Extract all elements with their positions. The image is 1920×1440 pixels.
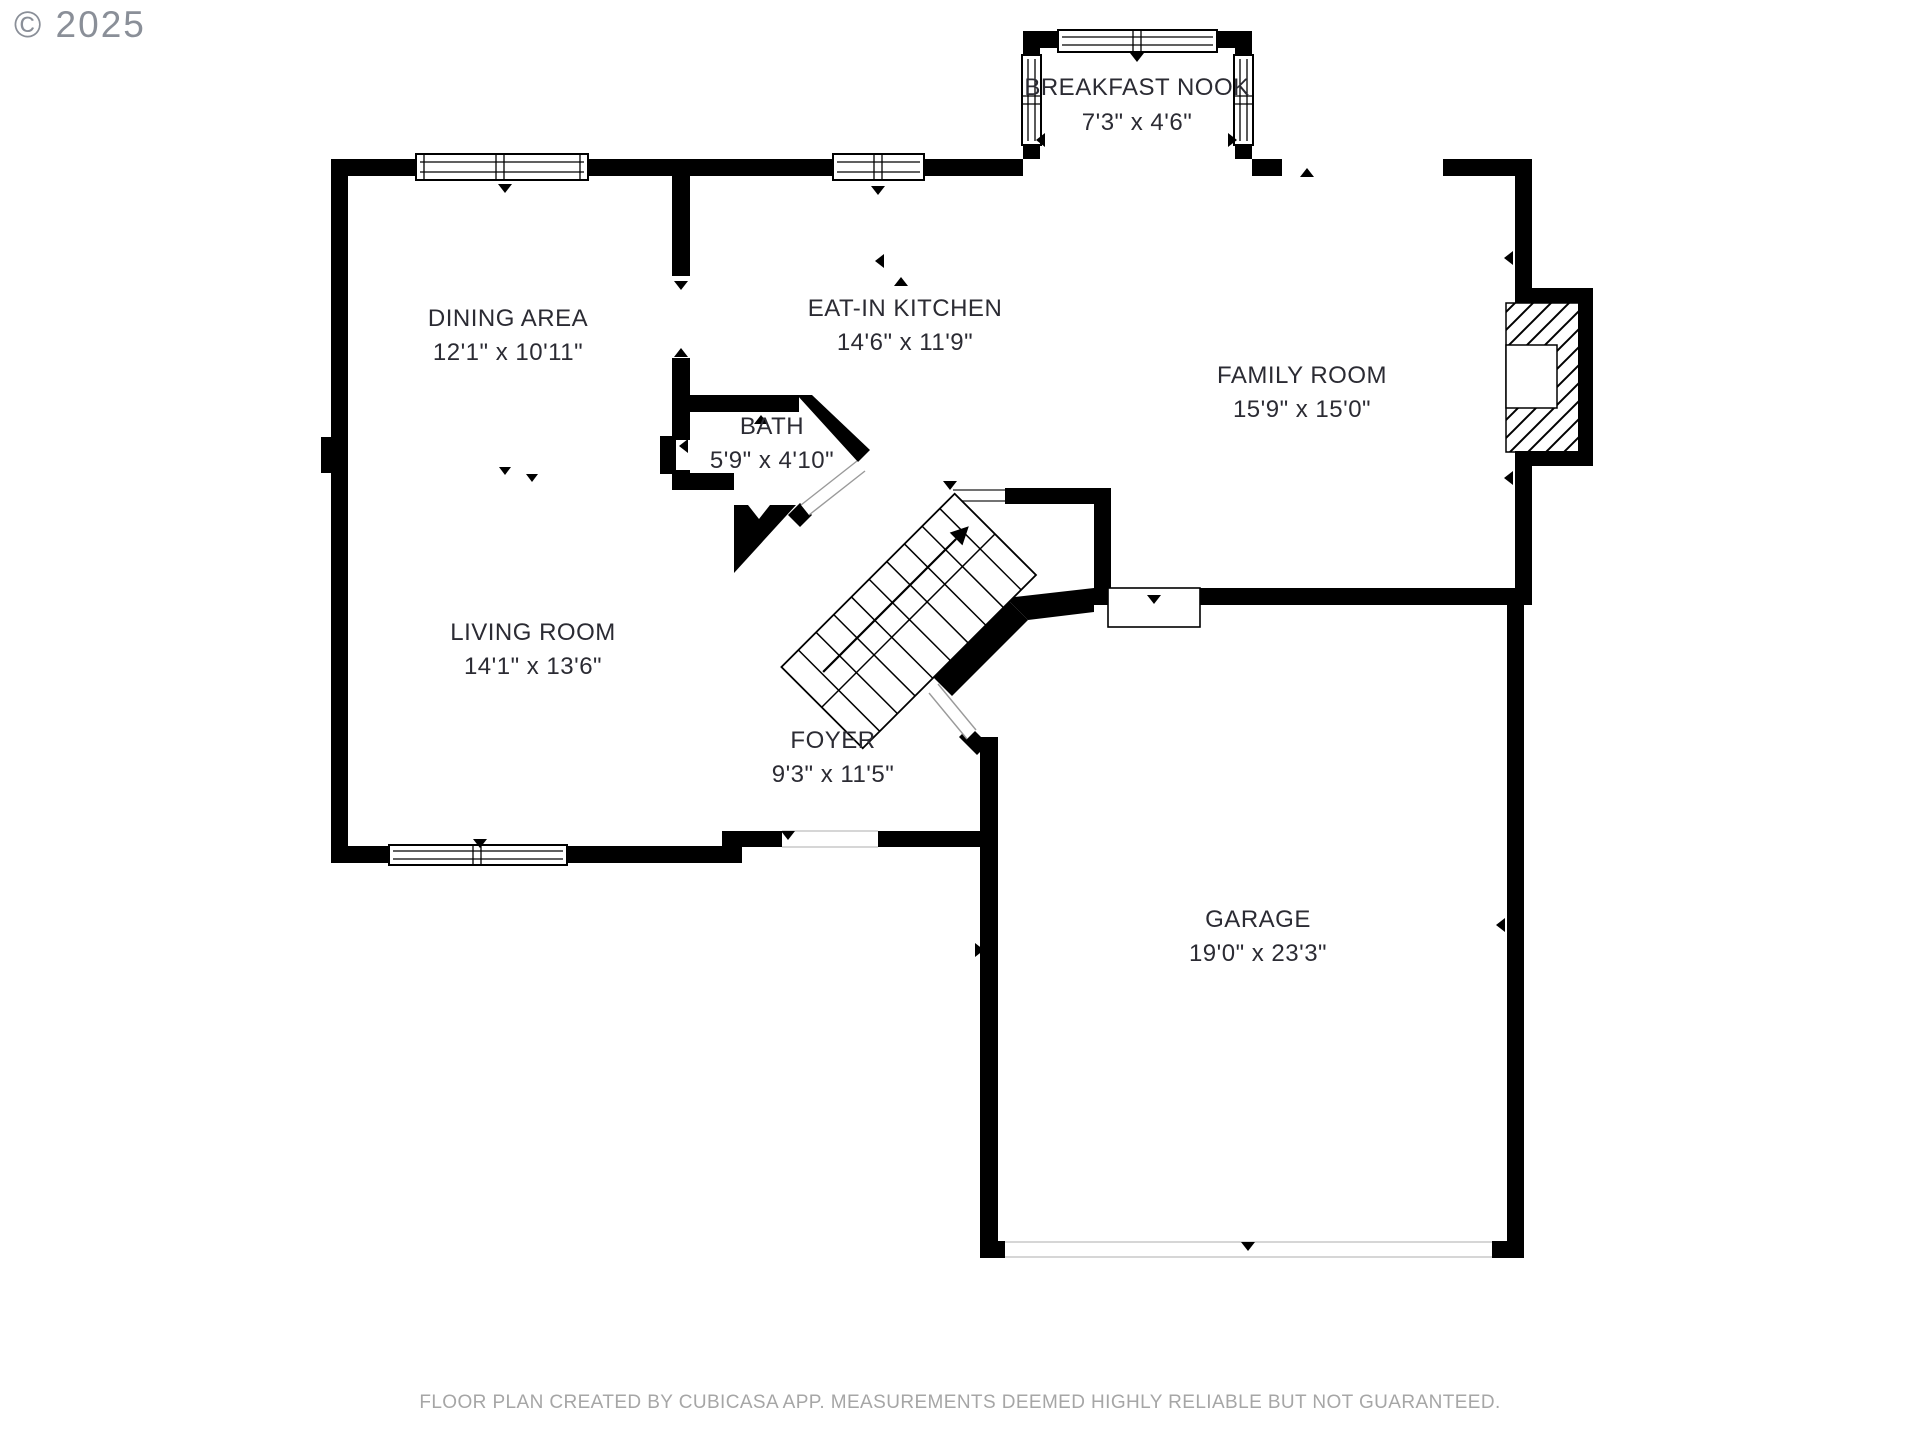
fireplace — [1506, 303, 1580, 452]
marker-down-icon — [498, 184, 512, 193]
living-room-window — [389, 845, 567, 865]
marker-down-icon — [526, 474, 538, 482]
wall-right-upper — [1515, 159, 1532, 288]
wall-stairtop — [1005, 488, 1094, 504]
marker-left-icon — [1496, 918, 1505, 932]
room-dims-breakfast-nook: 7'3" x 4'6" — [1082, 109, 1192, 136]
marker-down-icon — [1130, 53, 1144, 62]
wall-left — [331, 159, 348, 863]
room-label-garage: GARAGE — [1205, 906, 1311, 933]
disclaimer-text: FLOOR PLAN CREATED BY CUBICASA APP. MEAS… — [0, 1392, 1920, 1414]
marker-down-icon — [871, 186, 885, 195]
marker-left-icon — [1504, 251, 1513, 265]
marker-up-icon — [894, 277, 908, 286]
wall-foyer-bottom — [878, 831, 988, 847]
marker-up-icon — [1300, 168, 1314, 177]
wall-right-mid — [1515, 466, 1532, 605]
dining-window — [416, 154, 588, 180]
wall-bath-south — [672, 473, 734, 490]
room-dims-foyer: 9'3" x 11'5" — [772, 761, 895, 788]
wall-bath-pillar — [660, 436, 676, 474]
floor-plan-canvas: BREAKFAST NOOK 7'3" x 4'6" DINING AREA 1… — [0, 0, 1920, 1440]
garage-entry-door — [1108, 588, 1200, 627]
room-label-family-room: FAMILY ROOM — [1217, 362, 1387, 389]
marker-up-icon — [674, 348, 688, 357]
room-dims-living-room: 14'1" x 13'6" — [464, 653, 602, 680]
wall-bath-north — [672, 395, 799, 412]
marker-left-icon — [875, 254, 884, 268]
nook-top-window — [1058, 30, 1217, 52]
room-dims-eat-in-kitchen: 14'6" x 11'9" — [837, 329, 973, 356]
wall-garage-left — [980, 737, 998, 1258]
wall-foyer-step — [722, 831, 782, 847]
room-dims-dining-area: 12'1" x 10'11" — [433, 339, 583, 366]
wall-dining-divider — [672, 176, 690, 276]
marker-left-icon — [1504, 471, 1513, 485]
wall-garage-right — [1507, 605, 1524, 1258]
wall-top-stub — [1252, 159, 1282, 176]
floor-plan-page: © 2025 — [0, 0, 1920, 1440]
room-label-bath: BATH — [740, 413, 804, 440]
room-dims-bath: 5'9" x 4'10" — [710, 447, 834, 474]
fireplace-firebox — [1506, 345, 1557, 408]
wall-fireplace-bottom — [1515, 451, 1593, 466]
wall-junction-triangle — [734, 505, 796, 573]
front-door — [782, 828, 878, 850]
kitchen-window — [833, 154, 924, 180]
room-label-foyer: FOYER — [790, 727, 875, 754]
marker-down-icon — [499, 467, 511, 475]
room-label-eat-in-kitchen: EAT-IN KITCHEN — [808, 295, 1003, 322]
room-dims-family-room: 15'9" x 15'0" — [1233, 396, 1371, 423]
room-label-living-room: LIVING ROOM — [450, 619, 616, 646]
room-label-dining-area: DINING AREA — [428, 305, 588, 332]
marker-left-icon — [679, 439, 688, 453]
room-dims-garage: 19'0" x 23'3" — [1189, 940, 1327, 967]
wall-left-pillar — [321, 437, 339, 473]
marker-down-icon — [674, 281, 688, 290]
room-label-breakfast-nook: BREAKFAST NOOK — [1024, 74, 1249, 101]
